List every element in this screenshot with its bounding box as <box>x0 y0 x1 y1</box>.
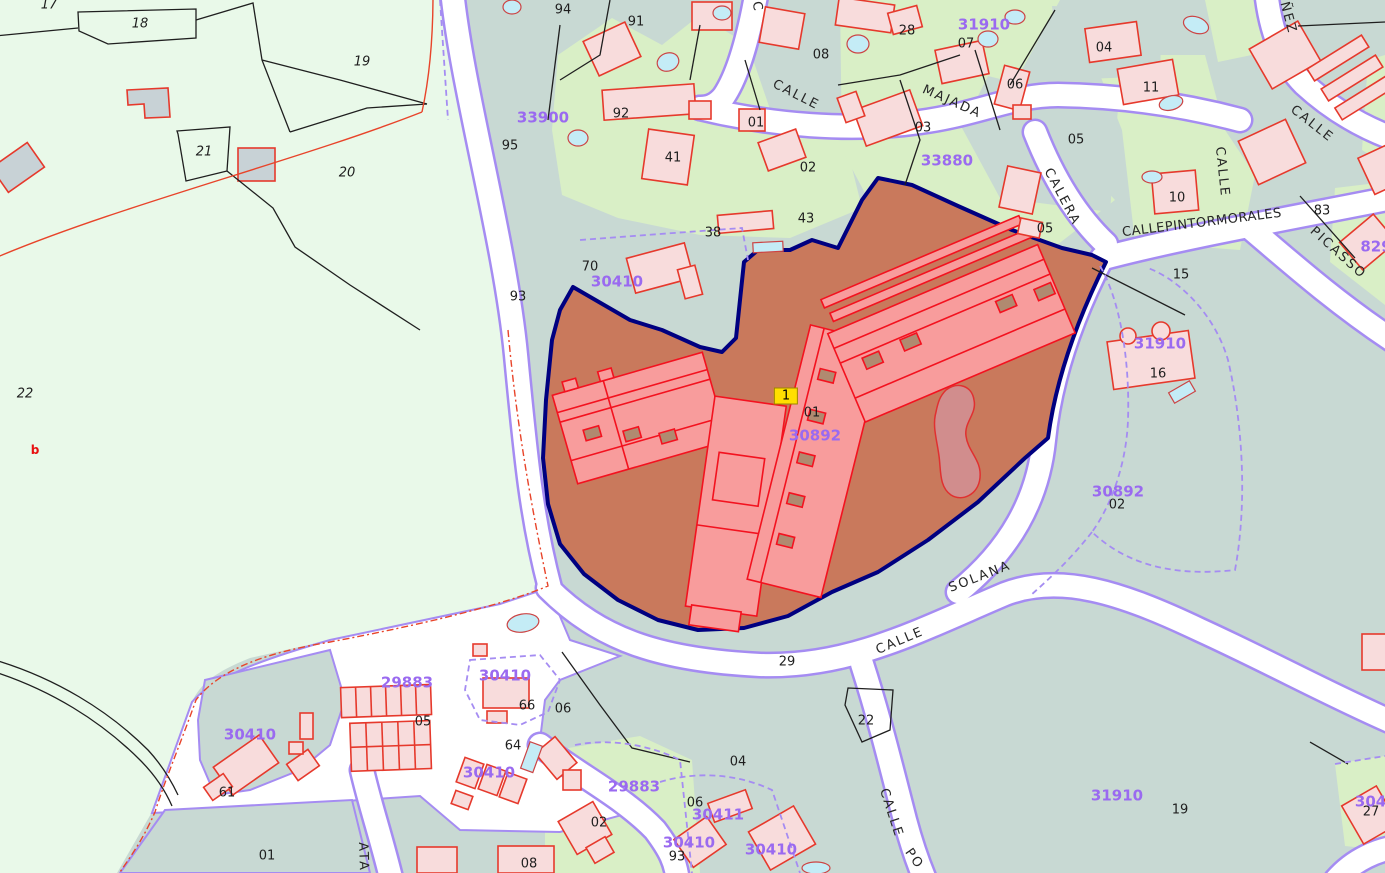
parcel-number: 02 <box>591 817 608 830</box>
parcel-number: 17 <box>41 0 58 12</box>
parcel-number: 21 <box>196 146 213 159</box>
cadastral-code: 30892 <box>789 429 841 444</box>
parcel-number: 28 <box>899 25 916 38</box>
parcel-number: 06 <box>555 703 572 716</box>
cadastral-code: 30410 <box>745 843 797 858</box>
parcel-number: 66 <box>519 700 536 713</box>
street-name: ATA <box>356 842 370 872</box>
cadastral-code: 31910 <box>958 18 1010 33</box>
cadastral-code: 30410 <box>224 728 276 743</box>
cadastral-code: 33900 <box>517 111 569 126</box>
cadastral-code: 33880 <box>921 154 973 169</box>
cadastral-code: 30410 <box>663 836 715 851</box>
parcel-number: 41 <box>665 152 682 165</box>
cadastral-code: 31910 <box>1091 789 1143 804</box>
selected-parcel-marker[interactable]: 1 <box>774 388 798 405</box>
parcel-number: 15 <box>1173 269 1190 282</box>
parcel-number: 05 <box>1068 134 1085 147</box>
cadastral-code: 31910 <box>1134 337 1186 352</box>
parcel-number: 10 <box>1169 192 1186 205</box>
parcel-number: 01 <box>259 850 276 863</box>
parcel-number: 04 <box>730 756 747 769</box>
parcel-number: 22 <box>858 715 875 728</box>
cadastral-code: 30410 <box>479 669 531 684</box>
map-canvas <box>0 0 1385 873</box>
parcel-number: 22 <box>17 388 34 401</box>
cadastral-code: 30411 <box>692 808 744 823</box>
parcel-number: 06 <box>1007 79 1024 92</box>
red-point-label: b <box>31 444 40 456</box>
street-name: C <box>750 0 765 13</box>
parcel-number: 29 <box>779 656 796 669</box>
cadastral-map: 17 18 19 21 20 22 94 91 92 95 41 01 02 0… <box>0 0 1385 873</box>
parcel-number: 20 <box>339 167 356 180</box>
parcel-number: 01 <box>748 117 765 130</box>
parcel-number: 83 <box>1314 205 1331 218</box>
cadastral-code: 29883 <box>608 780 660 795</box>
parcel-number: 94 <box>555 4 572 17</box>
parcel-number: 16 <box>1150 368 1167 381</box>
cadastral-code: 30411 <box>1355 795 1385 810</box>
cadastral-code: 829 <box>1360 240 1385 255</box>
parcel-number: 11 <box>1143 82 1160 95</box>
parcel-number: 61 <box>219 787 236 800</box>
parcel-number: 18 <box>132 18 149 31</box>
parcel-number: 08 <box>521 858 538 871</box>
parcel-number: 38 <box>705 227 722 240</box>
parcel-number: 03 <box>915 122 932 135</box>
parcel-number: 43 <box>798 213 815 226</box>
parcel-number: 08 <box>813 49 830 62</box>
parcel-number: 91 <box>628 16 645 29</box>
parcel-number: 64 <box>505 740 522 753</box>
parcel-number: 05 <box>1037 223 1054 236</box>
parcel-number: 92 <box>613 108 630 121</box>
parcel-number: 04 <box>1096 42 1113 55</box>
parcel-number: 05 <box>415 716 432 729</box>
cadastral-code: 30410 <box>463 766 515 781</box>
parcel-number: 93 <box>669 851 686 864</box>
parcel-number: 01 <box>804 407 821 420</box>
cadastral-code: 30410 <box>591 275 643 290</box>
parcel-number: 95 <box>502 140 519 153</box>
parcel-number: 07 <box>958 38 975 51</box>
parcel-number: 93 <box>510 291 527 304</box>
parcel-number: 02 <box>800 162 817 175</box>
parcel-number: 19 <box>354 56 371 69</box>
cadastral-code: 30892 <box>1092 485 1144 500</box>
parcel-number: 19 <box>1172 804 1189 817</box>
cadastral-code: 29883 <box>381 676 433 691</box>
